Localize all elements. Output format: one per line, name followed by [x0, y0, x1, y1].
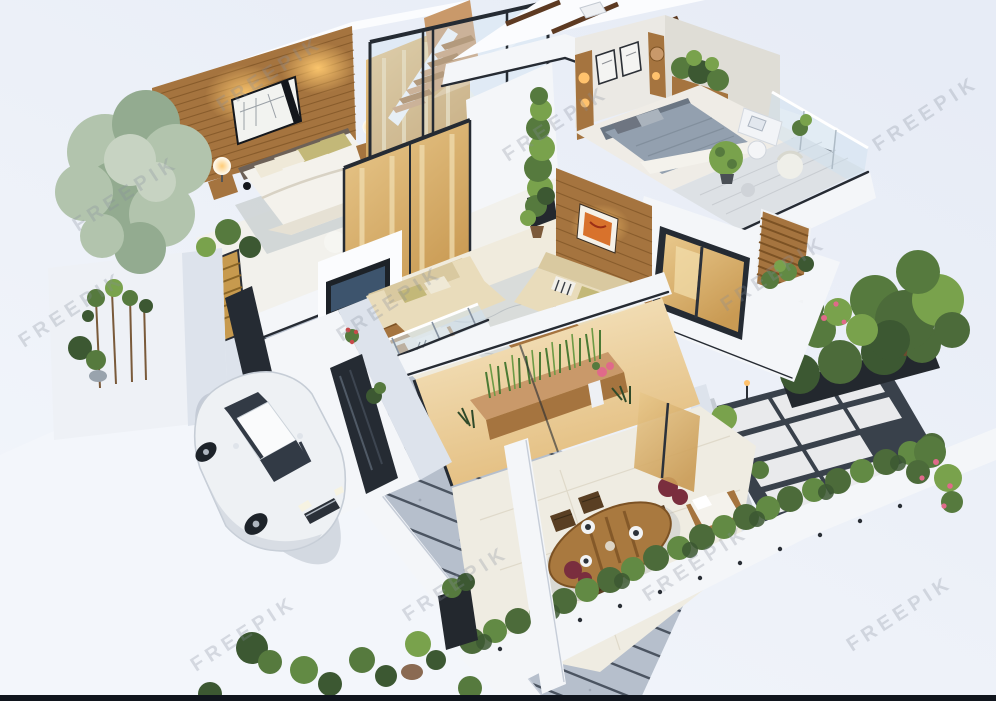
- car-mirror: [233, 443, 239, 449]
- balcony-armchair: [777, 152, 803, 179]
- bottom-edge: [0, 695, 996, 701]
- render-stage: FREEPIK FREEPIK FREEPIK FREEPIK FREEPIK …: [0, 0, 996, 701]
- garden-bush: [751, 461, 769, 479]
- gray-pot: [89, 370, 107, 382]
- topiary-ball: [709, 141, 743, 175]
- downlight: [243, 182, 251, 190]
- balcony-side-table: [741, 183, 755, 197]
- terrace-ottoman: [324, 231, 346, 253]
- terracotta-pot: [401, 664, 423, 680]
- scene-svg: FREEPIK FREEPIK FREEPIK FREEPIK FREEPIK …: [0, 0, 996, 701]
- car-mirror: [297, 433, 303, 439]
